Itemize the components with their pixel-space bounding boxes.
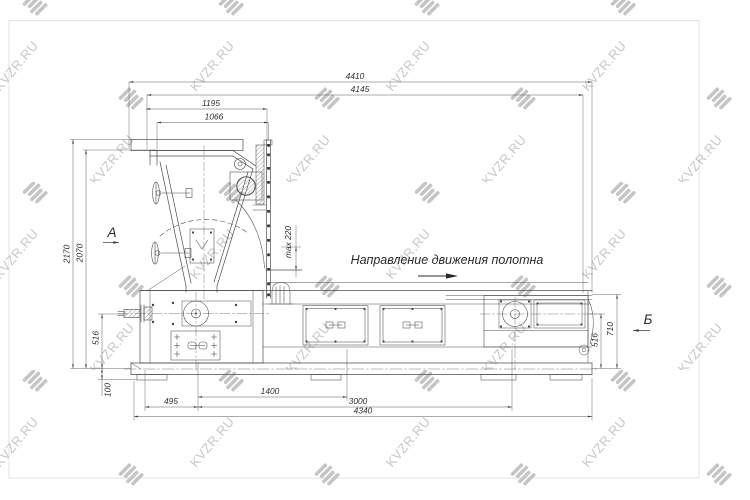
svg-text:1400: 1400 <box>261 386 280 396</box>
svg-text:516: 516 <box>590 333 600 347</box>
svg-text:100: 100 <box>103 383 113 397</box>
svg-text:710: 710 <box>605 322 615 336</box>
svg-text:max 220: max 220 <box>283 226 293 258</box>
svg-text:А: А <box>106 225 116 240</box>
svg-text:516: 516 <box>91 331 101 345</box>
svg-text:2170: 2170 <box>62 244 72 264</box>
svg-text:3000: 3000 <box>349 396 368 406</box>
svg-text:Б: Б <box>644 312 653 327</box>
svg-text:1066: 1066 <box>205 112 224 122</box>
svg-text:4340: 4340 <box>354 406 373 416</box>
svg-text:4410: 4410 <box>346 71 365 81</box>
watermark-layer <box>0 0 750 500</box>
svg-text:2070: 2070 <box>75 243 85 263</box>
svg-text:Направление движения полотна: Направление движения полотна <box>351 253 544 267</box>
drawing-canvas: KVZR.RU KVZR.RU <box>0 0 750 500</box>
screenshot-root: KVZR.RU KVZR.RU <box>0 0 750 500</box>
svg-text:495: 495 <box>164 396 178 406</box>
svg-text:4145: 4145 <box>351 84 370 94</box>
svg-text:1195: 1195 <box>202 98 220 108</box>
